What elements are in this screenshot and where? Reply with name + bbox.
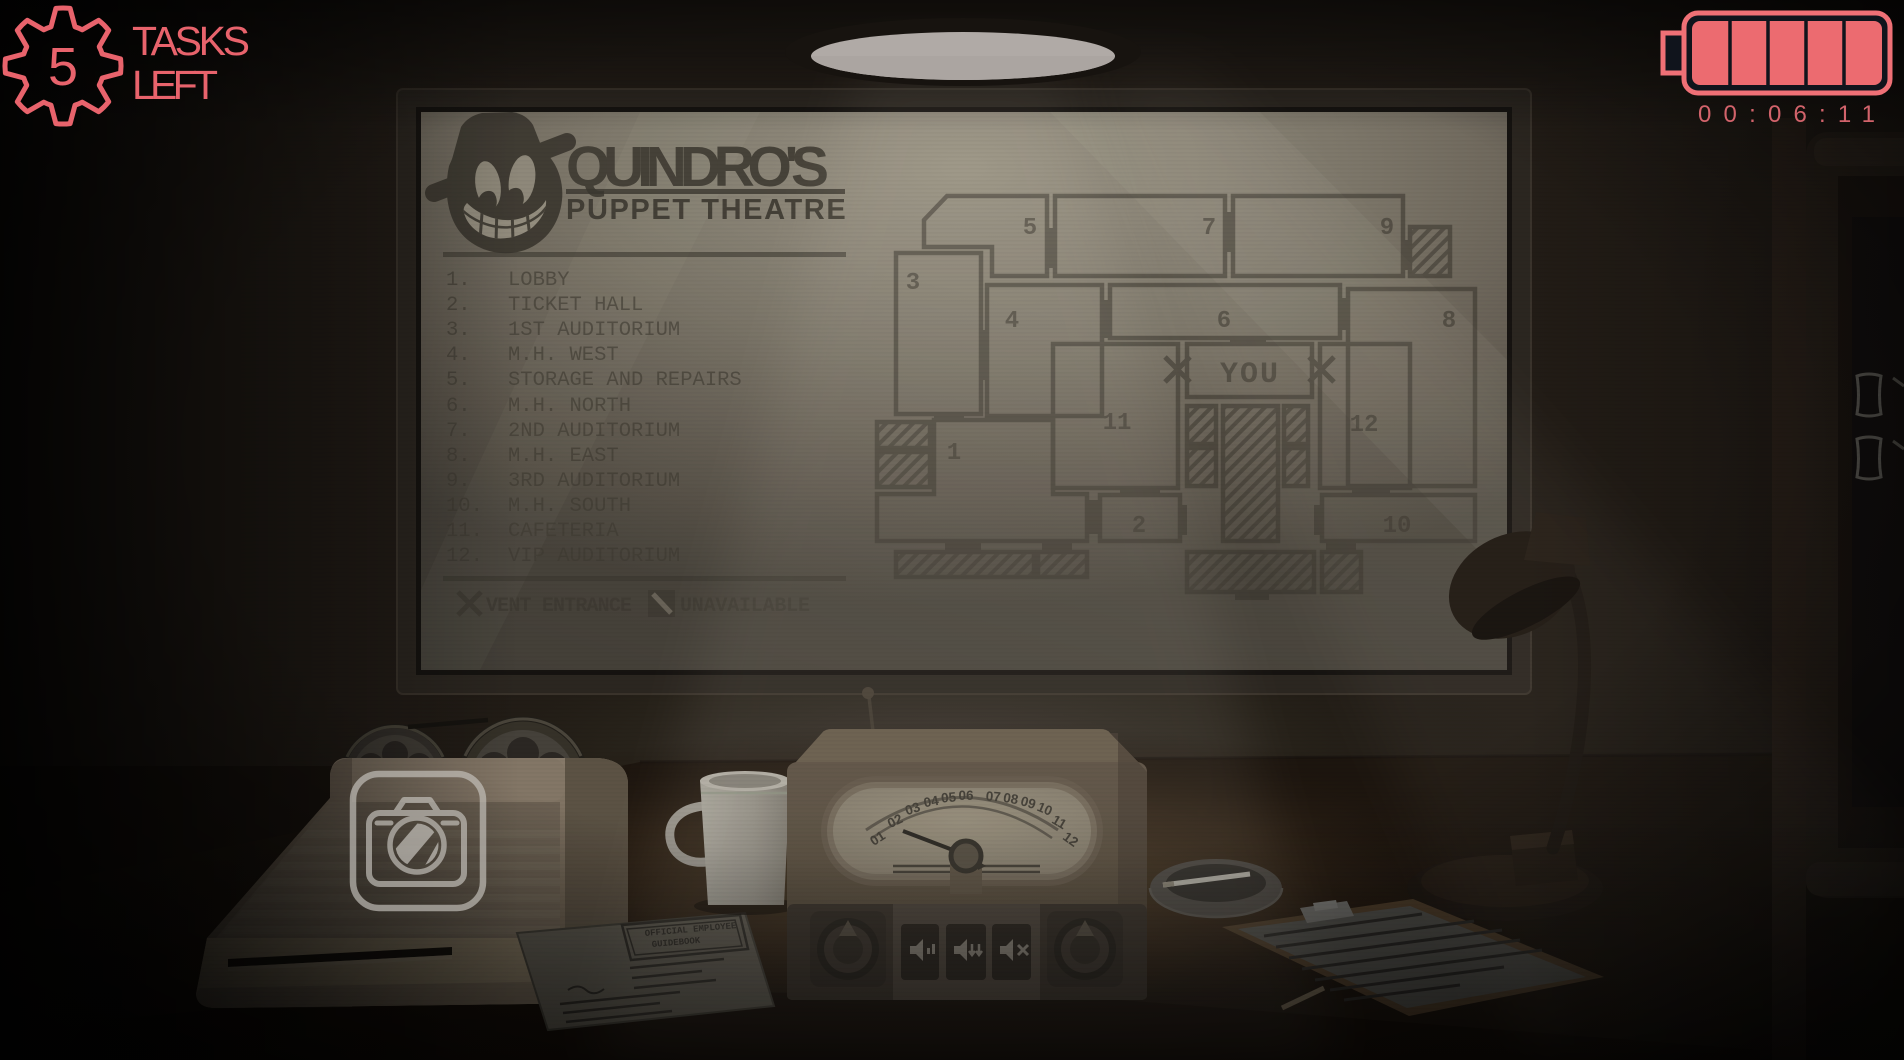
svg-text:TASKS: TASKS bbox=[132, 18, 250, 64]
svg-text:LEFT: LEFT bbox=[132, 62, 218, 108]
svg-text:5: 5 bbox=[48, 37, 78, 97]
